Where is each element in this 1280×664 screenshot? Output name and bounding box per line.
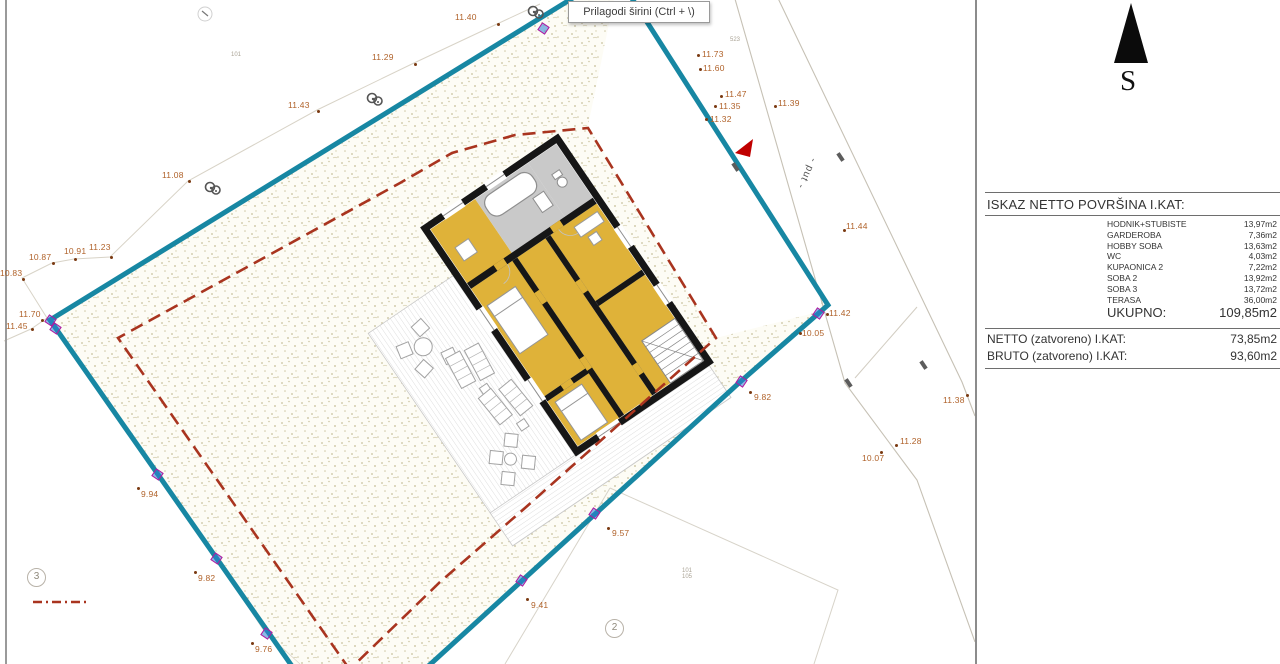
elevation-label: 10.87 xyxy=(29,252,51,262)
room-area: 13,72m2 xyxy=(1244,284,1280,295)
elevation-label: 11.73 xyxy=(702,49,724,59)
table-rule xyxy=(985,192,1280,193)
elevation-point xyxy=(52,262,55,265)
elevation-label: 11.43 xyxy=(288,100,310,110)
elevation-point xyxy=(895,444,898,447)
room-name: KUPAONICA 2 xyxy=(1107,262,1249,273)
elevation-point xyxy=(843,229,846,232)
elevation-label: 9.41 xyxy=(531,600,548,610)
entrance-arrow xyxy=(735,139,753,157)
drawing-frame-left xyxy=(5,0,7,664)
room-area: 4,03m2 xyxy=(1249,251,1280,262)
table-rule xyxy=(985,368,1280,369)
elevation-point xyxy=(774,105,777,108)
room-name: SOBA 2 xyxy=(1107,273,1244,284)
area-table-row: SOBA 313,72m2 xyxy=(985,284,1280,295)
elevation-point xyxy=(697,54,700,57)
area-table-row: KUPAONICA 27,22m2 xyxy=(985,262,1280,273)
elevation-point xyxy=(720,95,723,98)
parcel-number-label: 105 xyxy=(682,574,692,580)
elevation-point xyxy=(110,256,113,259)
elevation-label: 11.42 xyxy=(829,308,851,318)
circled-parcel-number: 3 xyxy=(27,568,46,587)
room-area: 36,00m2 xyxy=(1244,295,1280,306)
area-table-row: GARDEROBA7,36m2 xyxy=(985,230,1280,241)
area-table-row: HOBBY SOBA13,63m2 xyxy=(985,241,1280,252)
area-table-row: WC4,03m2 xyxy=(985,251,1280,262)
north-arrow-icon xyxy=(1114,3,1148,63)
room-area: 13,63m2 xyxy=(1244,241,1280,252)
elevation-label: 11.47 xyxy=(725,89,747,99)
drawing-frame-right xyxy=(975,0,977,664)
elevation-label: 11.39 xyxy=(778,98,800,108)
elevation-point xyxy=(188,180,191,183)
bruto-value: 93,60m2 xyxy=(1230,349,1280,363)
bruto-row: BRUTO (zatvoreno) I.KAT: 93,60m2 xyxy=(985,349,1280,363)
elevation-point xyxy=(799,332,802,335)
room-name: SOBA 3 xyxy=(1107,284,1244,295)
elevation-point xyxy=(699,68,702,71)
elevation-point xyxy=(22,278,25,281)
elevation-label: 11.23 xyxy=(89,242,111,252)
total-value: 109,85m2 xyxy=(1219,305,1280,320)
elevation-label: 9.94 xyxy=(141,489,158,499)
road-line xyxy=(855,307,917,378)
road-line xyxy=(775,0,975,416)
area-table-row: SOBA 213,92m2 xyxy=(985,273,1280,284)
table-rule xyxy=(985,328,1280,329)
elevation-label: 9.82 xyxy=(198,573,215,583)
elevation-label: 9.82 xyxy=(754,392,771,402)
north-arrow: S xyxy=(1114,3,1154,103)
elevation-point xyxy=(414,63,417,66)
elevation-label: 11.40 xyxy=(455,12,477,22)
elevation-point xyxy=(966,394,969,397)
room-area: 13,92m2 xyxy=(1244,273,1280,284)
elevation-point xyxy=(317,110,320,113)
netto-value: 73,85m2 xyxy=(1230,332,1280,346)
elevation-label: 11.28 xyxy=(900,436,922,446)
elevation-label: 11.70 xyxy=(19,309,41,319)
elevation-label: 10.05 xyxy=(802,328,824,338)
elevation-label: 10.91 xyxy=(64,246,86,256)
elevation-label: 11.29 xyxy=(372,52,394,62)
elevation-point xyxy=(526,598,529,601)
total-label: UKUPNO: xyxy=(1107,305,1219,320)
parcel-number-label: 101 xyxy=(231,52,241,58)
netto-label: NETTO (zatvoreno) I.KAT: xyxy=(985,332,1230,346)
room-name: GARDEROBA xyxy=(1107,230,1249,241)
elevation-label: 10.83 xyxy=(0,268,22,278)
room-area: 13,97m2 xyxy=(1244,219,1280,230)
room-name: HOBBY SOBA xyxy=(1107,241,1244,252)
room-name: WC xyxy=(1107,251,1249,262)
elevation-point xyxy=(194,571,197,574)
elevation-label: 11.44 xyxy=(846,221,868,231)
elevation-point xyxy=(137,487,140,490)
site-plan-drawing xyxy=(0,0,978,664)
area-table-rows: HODNIK+STUBISTE13,97m2GARDEROBA7,36m2HOB… xyxy=(985,219,1280,305)
elevation-point xyxy=(74,258,77,261)
elevation-label: 11.45 xyxy=(6,321,28,331)
elevation-label: 11.35 xyxy=(719,101,741,111)
room-area: 7,22m2 xyxy=(1249,262,1280,273)
elevation-point xyxy=(251,642,254,645)
north-arrow-label: S xyxy=(1120,65,1154,98)
room-name: HODNIK+STUBISTE xyxy=(1107,219,1244,230)
table-rule xyxy=(985,215,1280,216)
netto-row: NETTO (zatvoreno) I.KAT: 73,85m2 xyxy=(985,332,1280,346)
area-table-row: TERASA36,00m2 xyxy=(985,295,1280,306)
pdf-viewer-page: 11.4011.2911.4311.0810.8710.9111.2310.83… xyxy=(0,0,1280,664)
elevation-point xyxy=(880,451,883,454)
circled-parcel-number: 2 xyxy=(605,619,624,638)
area-table-row: HODNIK+STUBISTE13,97m2 xyxy=(985,219,1280,230)
elevation-label: 11.60 xyxy=(703,63,725,73)
parcel-number-label: 523 xyxy=(730,37,740,43)
elevation-label: 9.57 xyxy=(612,528,629,538)
bruto-label: BRUTO (zatvoreno) I.KAT: xyxy=(985,349,1230,363)
elevation-label: 9.76 xyxy=(255,644,272,654)
elevation-point xyxy=(607,527,610,530)
elevation-point xyxy=(749,391,752,394)
elevation-label: 11.08 xyxy=(162,170,184,180)
room-name: TERASA xyxy=(1107,295,1244,306)
elevation-point xyxy=(31,328,34,331)
survey-station-mark xyxy=(202,11,208,16)
elevation-point xyxy=(705,118,708,121)
elevation-point xyxy=(826,313,829,316)
area-table-total: UKUPNO: 109,85m2 xyxy=(985,305,1280,320)
area-table-title: ISKAZ NETTO POVRŠINA I.KAT: xyxy=(987,197,1185,212)
elevation-label: 10.07 xyxy=(862,453,884,463)
elevation-point xyxy=(497,23,500,26)
elevation-label: 11.38 xyxy=(943,395,965,405)
room-area: 7,36m2 xyxy=(1249,230,1280,241)
elevation-label: 11.32 xyxy=(710,114,732,124)
fit-to-width-tooltip: Prilagodi širini (Ctrl + \) xyxy=(568,1,710,23)
elevation-point xyxy=(714,105,717,108)
